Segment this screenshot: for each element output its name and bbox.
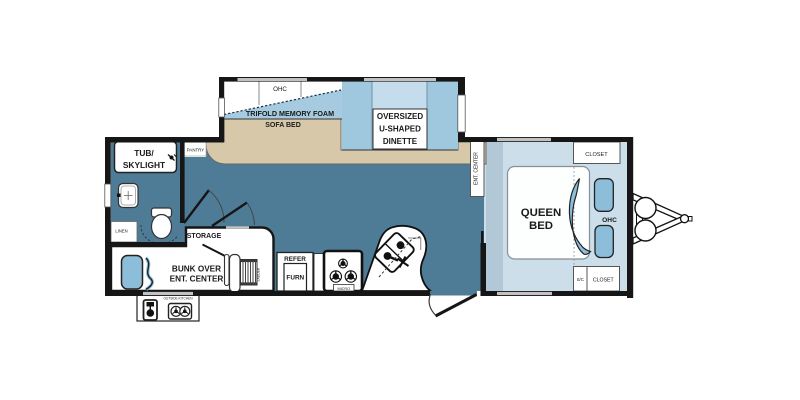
svg-text:BED: BED	[529, 220, 553, 232]
svg-text:QUEEN: QUEEN	[521, 207, 562, 219]
svg-text:TRIFOLD MEMORY FOAM: TRIFOLD MEMORY FOAM	[246, 109, 334, 118]
svg-text:CLOSET: CLOSET	[593, 278, 615, 284]
svg-text:BUNK OVER: BUNK OVER	[172, 265, 221, 274]
svg-text:ENT. CENTER: ENT. CENTER	[474, 152, 480, 185]
svg-text:PANTRY: PANTRY	[187, 148, 204, 153]
svg-text:FURN: FURN	[286, 275, 304, 282]
svg-text:S/C: S/C	[577, 277, 584, 282]
svg-text:OUTSIDE KITCHEN: OUTSIDE KITCHEN	[163, 297, 193, 301]
svg-text:LADDER: LADDER	[257, 267, 261, 281]
svg-text:STORAGE: STORAGE	[187, 233, 222, 240]
svg-text:OVERSIZED: OVERSIZED	[377, 112, 423, 121]
svg-text:SKYLIGHT: SKYLIGHT	[123, 160, 166, 170]
svg-text:OHC: OHC	[273, 86, 287, 93]
svg-text:CLOSET: CLOSET	[585, 152, 608, 158]
svg-text:U-SHAPED: U-SHAPED	[379, 125, 421, 134]
svg-text:MICRO: MICRO	[337, 287, 350, 291]
svg-text:LINEN: LINEN	[115, 229, 127, 234]
svg-text:SOFA BED: SOFA BED	[265, 122, 301, 129]
svg-text:DINETTE: DINETTE	[383, 137, 418, 146]
svg-text:OHC: OHC	[602, 217, 617, 224]
svg-text:ENT. CENTER: ENT. CENTER	[170, 275, 224, 284]
svg-text:REFER: REFER	[284, 256, 306, 263]
svg-text:TUB/: TUB/	[134, 148, 154, 158]
